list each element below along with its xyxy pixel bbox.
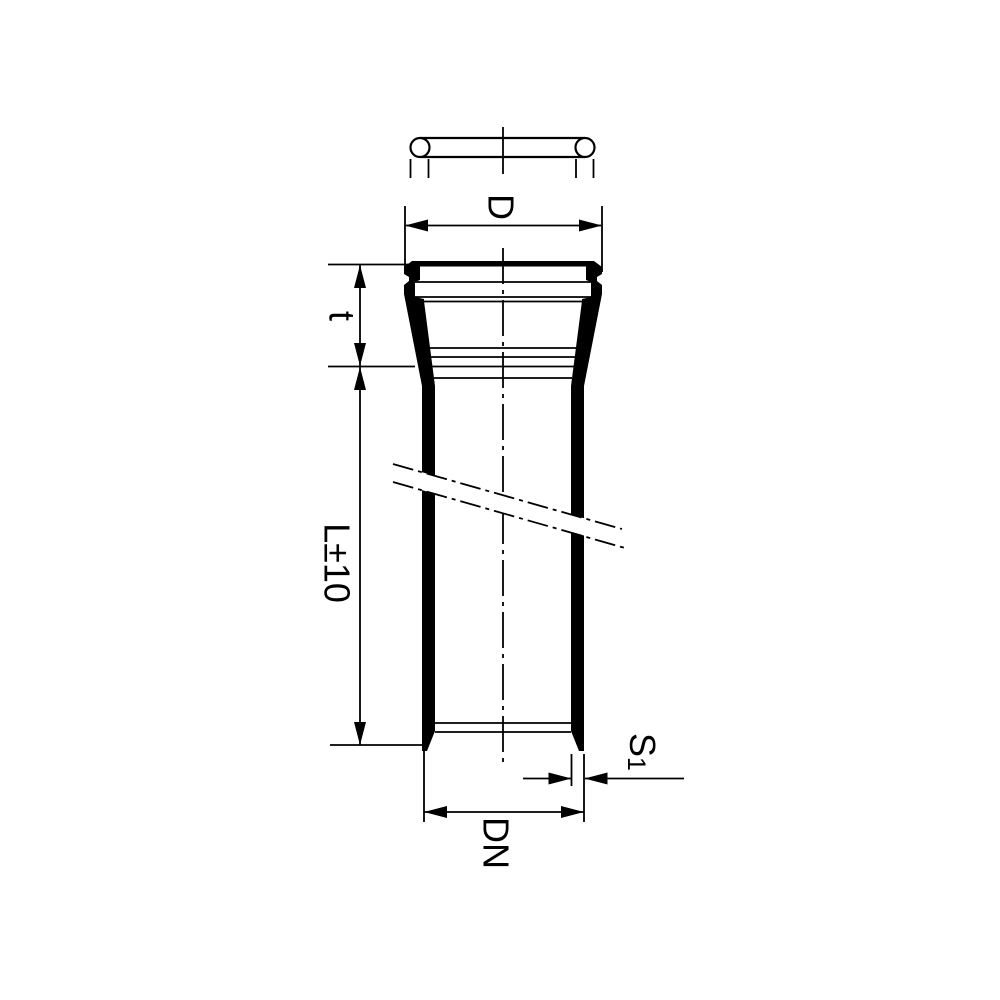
pipe-drawing: D t L±10 S1 DN	[0, 0, 1000, 1000]
arrowhead	[354, 343, 366, 366]
arrowhead	[354, 265, 366, 288]
technical-drawing-canvas: D t L±10 S1 DN	[0, 0, 1000, 1000]
arrowhead	[585, 773, 608, 785]
pipe-left-wall	[404, 261, 435, 751]
o-ring-seal	[411, 127, 595, 178]
arrowhead	[579, 220, 602, 232]
arrowhead	[354, 722, 366, 745]
o-ring-right-section	[576, 138, 595, 157]
dimension-label-S1: S1	[622, 733, 664, 771]
o-ring-left-section	[411, 138, 430, 157]
dimension-t: t	[322, 265, 416, 367]
s1-main: S	[623, 733, 664, 757]
s1-subscript: 1	[622, 757, 650, 771]
dimension-label-DN: DN	[476, 817, 517, 869]
dimension-label-t: t	[322, 311, 363, 321]
dimension-L: L±10	[317, 367, 427, 745]
o-ring-ticks	[411, 159, 594, 178]
arrowhead	[549, 773, 572, 785]
dimension-S1: S1	[523, 733, 684, 786]
pipe-right-wall	[571, 261, 602, 751]
arrowhead	[354, 367, 366, 390]
arrowhead	[561, 806, 584, 818]
arrowhead	[424, 806, 447, 818]
dimension-label-D: D	[481, 194, 522, 220]
dimension-label-L: L±10	[317, 523, 358, 603]
arrowhead	[405, 220, 428, 232]
dimension-DN: DN	[424, 745, 584, 869]
